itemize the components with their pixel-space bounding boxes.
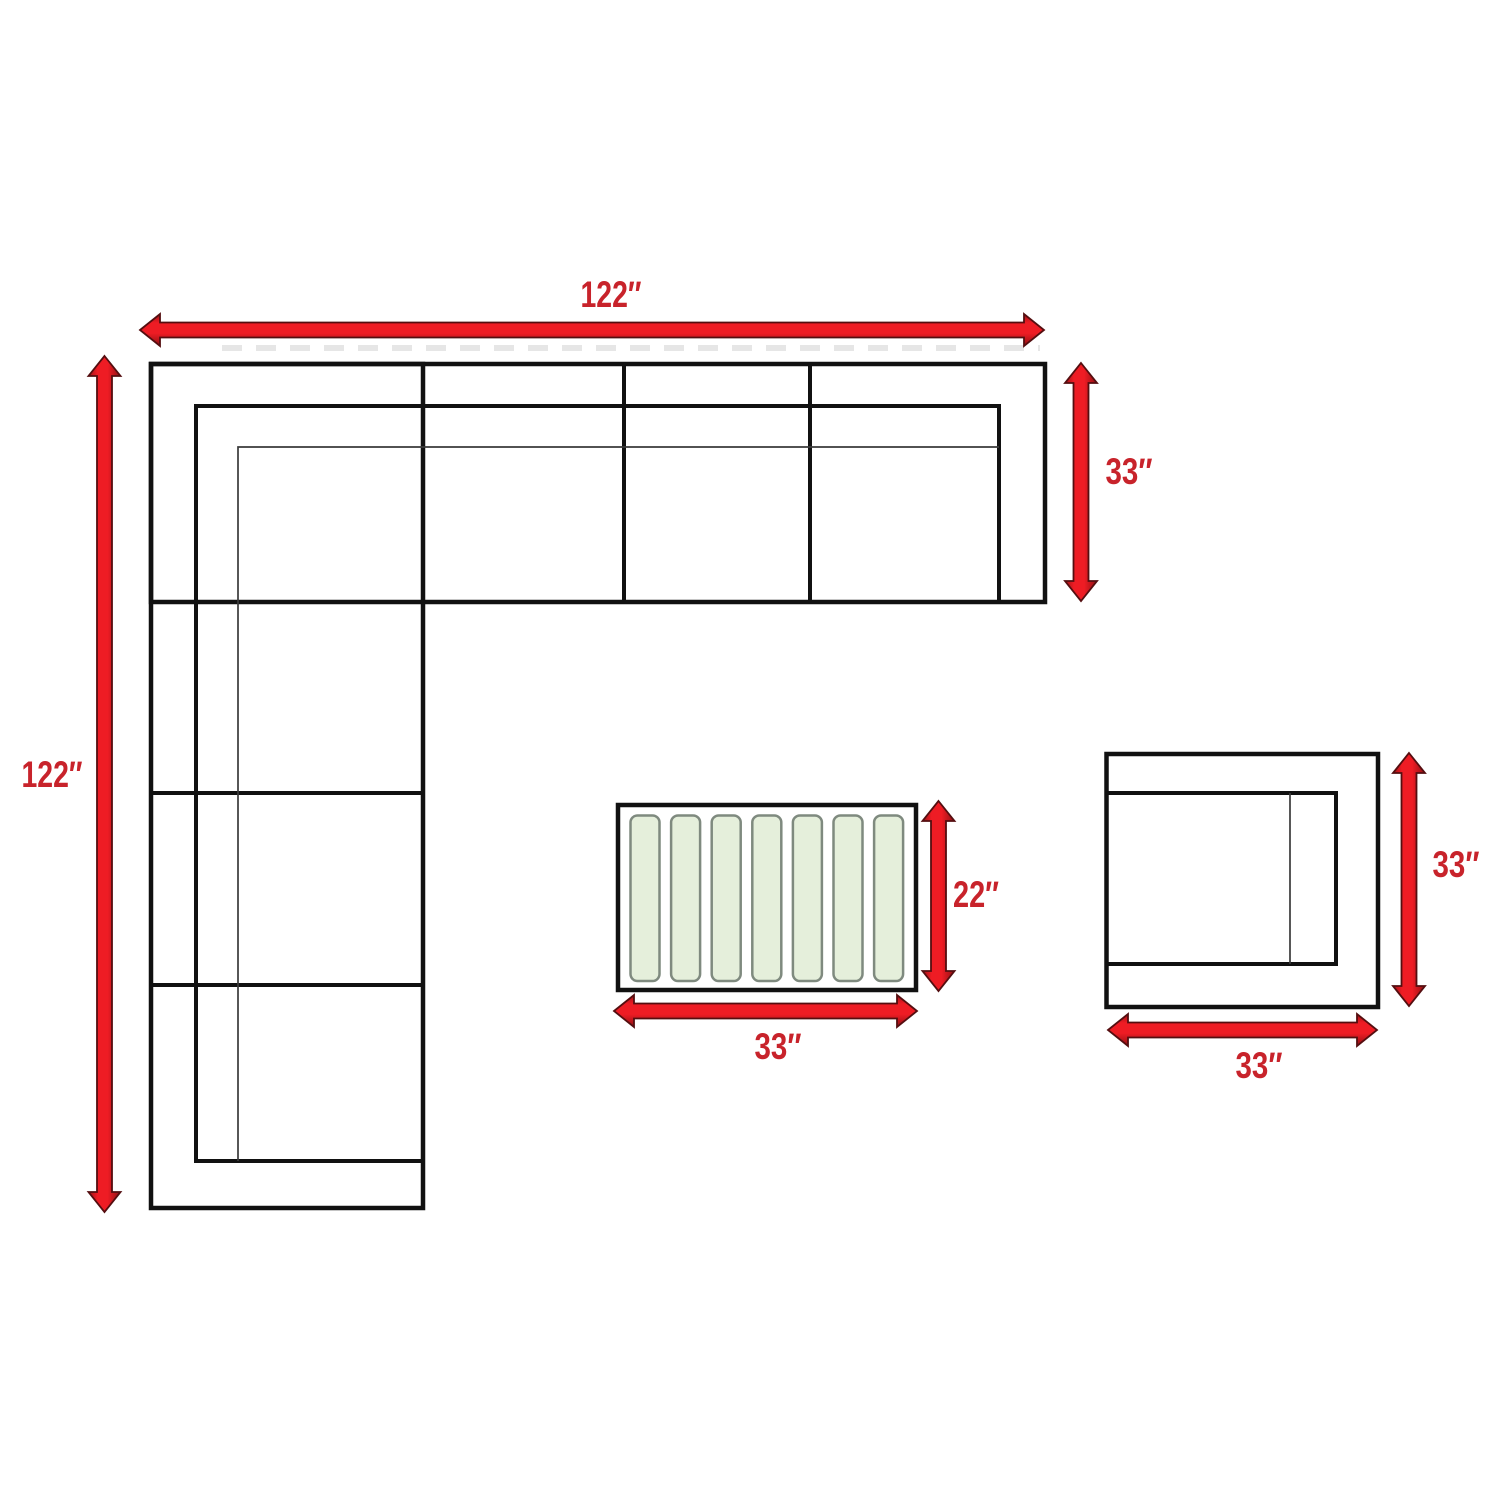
svg-text:122″: 122″ — [22, 754, 83, 795]
svg-text:33″: 33″ — [1433, 844, 1480, 885]
svg-text:33″: 33″ — [755, 1026, 802, 1067]
svg-text:122″: 122″ — [581, 274, 642, 315]
svg-text:22″: 22″ — [953, 874, 999, 915]
svg-text:33″: 33″ — [1236, 1045, 1283, 1086]
svg-text:33″: 33″ — [1106, 451, 1153, 492]
